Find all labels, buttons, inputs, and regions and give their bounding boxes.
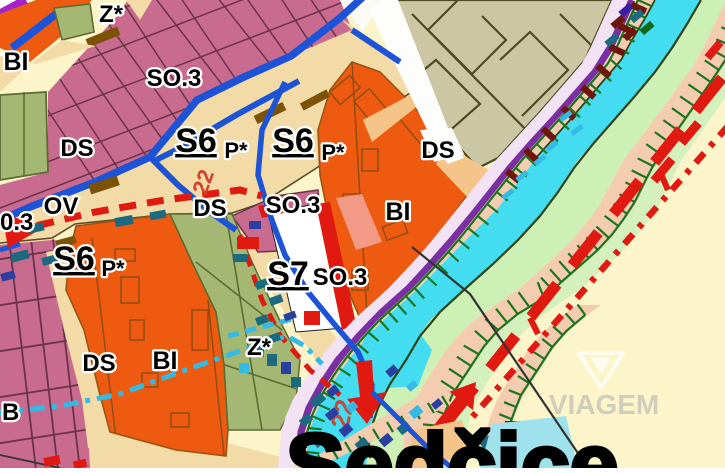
svg-text:P*: P* (101, 256, 125, 281)
svg-text:OV: OV (44, 193, 79, 220)
svg-text:SO.3: SO.3 (147, 65, 202, 92)
svg-text:Sedčice: Sedčice (286, 415, 619, 468)
svg-text:S6: S6 (272, 122, 314, 160)
svg-text:DS: DS (193, 195, 226, 222)
svg-text:DS: DS (82, 350, 115, 377)
svg-text:Z*: Z* (99, 1, 124, 28)
svg-text:B: B (2, 399, 19, 426)
svg-text:BI: BI (4, 48, 29, 76)
svg-text:S6: S6 (175, 122, 217, 160)
svg-text:BI: BI (153, 347, 178, 375)
svg-text:BI: BI (386, 198, 411, 226)
svg-text:S6: S6 (53, 240, 95, 278)
svg-text:0.3: 0.3 (0, 209, 33, 236)
svg-text:DS: DS (60, 135, 93, 162)
svg-text:P*: P* (224, 138, 248, 163)
svg-text:Z*: Z* (247, 334, 272, 361)
svg-text:S7: S7 (267, 255, 309, 293)
svg-text:SO.3: SO.3 (313, 264, 368, 291)
svg-text:SO.3: SO.3 (266, 192, 321, 219)
svg-text:DS: DS (421, 137, 454, 164)
svg-text:P*: P* (321, 140, 345, 165)
